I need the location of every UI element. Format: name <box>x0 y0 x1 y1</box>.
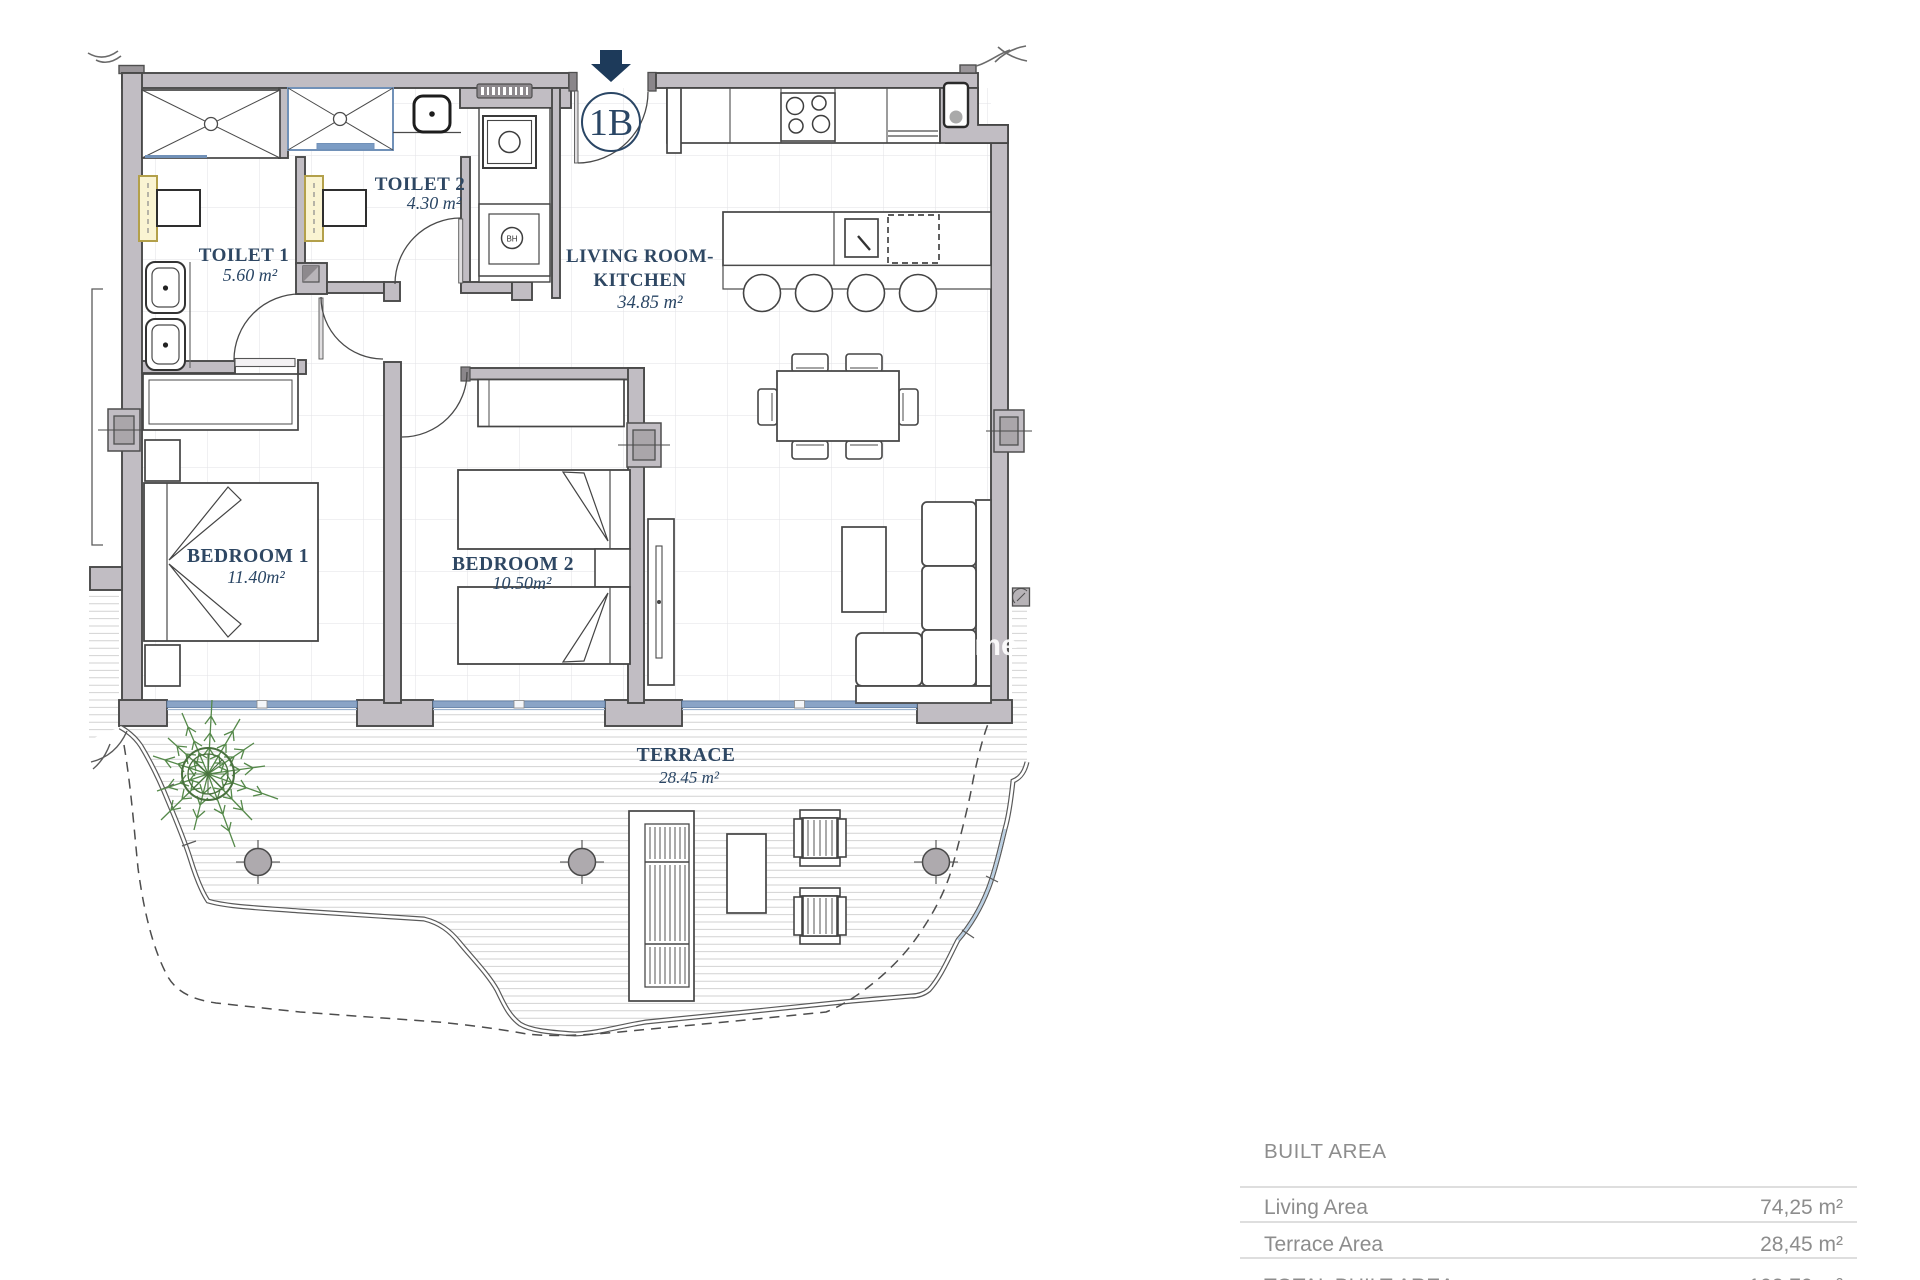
svg-text:74,25 m²: 74,25 m² <box>1760 1196 1843 1219</box>
svg-text:TOILET 1: TOILET 1 <box>199 245 289 266</box>
svg-text:Terrace Area: Terrace Area <box>1264 1233 1383 1256</box>
svg-text:4.30 m²: 4.30 m² <box>407 193 462 213</box>
svg-text:BH: BH <box>506 235 517 244</box>
svg-text:BUILT AREA: BUILT AREA <box>1264 1140 1387 1163</box>
svg-text:11.40m²: 11.40m² <box>227 567 285 587</box>
svg-text:me: me <box>974 629 1017 662</box>
svg-text:KITCHEN: KITCHEN <box>593 270 686 291</box>
svg-text:1B: 1B <box>589 102 633 144</box>
svg-text:10.50m²: 10.50m² <box>493 573 552 593</box>
svg-text:28,45 m²: 28,45 m² <box>1760 1233 1843 1256</box>
svg-text:34.85 m²: 34.85 m² <box>616 293 683 313</box>
svg-text:BEDROOM 1: BEDROOM 1 <box>187 546 309 567</box>
svg-text:28.45 m²: 28.45 m² <box>659 768 720 787</box>
svg-text:TOTAL BUILT AREA: TOTAL BUILT AREA <box>1264 1275 1454 1280</box>
svg-text:TOILET 2: TOILET 2 <box>375 174 465 195</box>
svg-text:Living Area: Living Area <box>1264 1196 1368 1219</box>
svg-text:102,70 m²: 102,70 m² <box>1748 1275 1843 1280</box>
svg-text:BEDROOM 2: BEDROOM 2 <box>452 554 574 575</box>
svg-text:LIVING ROOM-: LIVING ROOM- <box>566 246 714 267</box>
svg-text:TERRACE: TERRACE <box>637 745 736 766</box>
svg-text:5.60 m²: 5.60 m² <box>223 265 278 285</box>
